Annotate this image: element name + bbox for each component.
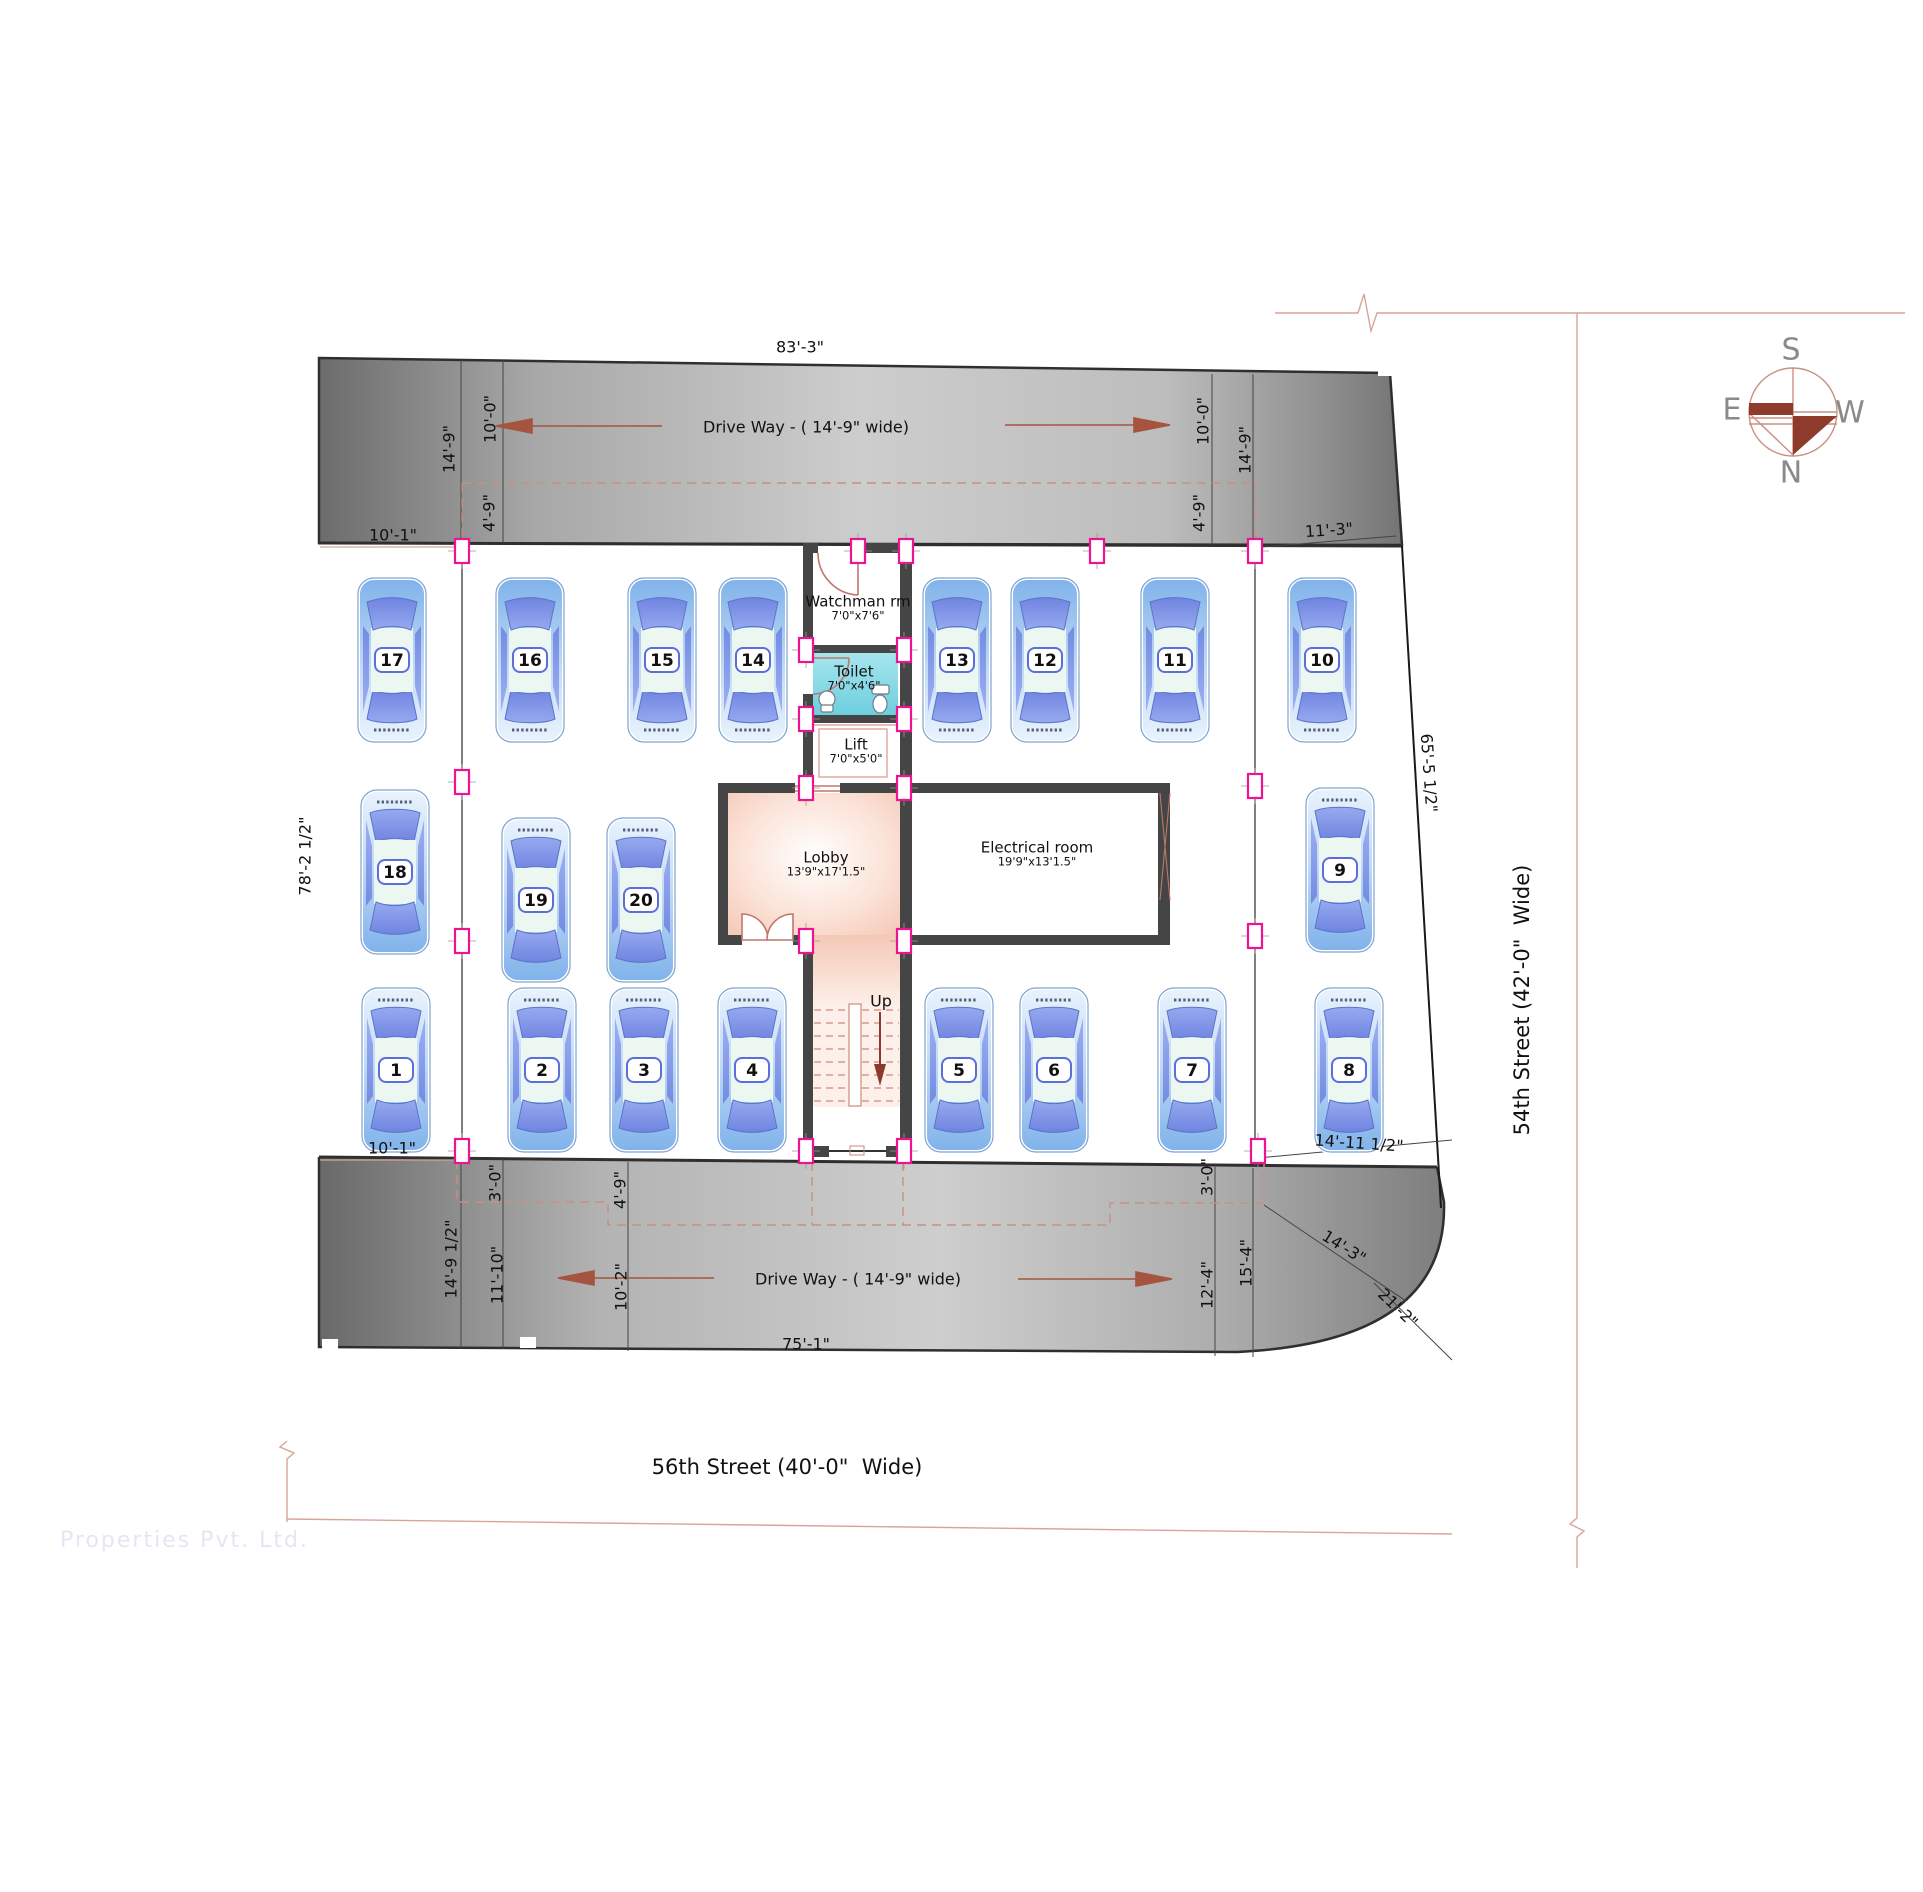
dimension-label: 14'-9": [440, 425, 459, 473]
parking-spot-number: 10: [1310, 651, 1334, 671]
room-name: Lobby: [787, 850, 866, 866]
dimension-label: 4'-9": [480, 494, 499, 532]
room-name: Toilet: [828, 664, 881, 680]
car-spot-5: 5: [925, 988, 993, 1152]
corner-notch: [1378, 363, 1394, 376]
room-size: 7'0"x4'6": [828, 680, 881, 692]
room-label-electrical-room: Electrical room19'9"x13'1.5": [981, 840, 1094, 869]
parking-spot-number: 18: [383, 863, 407, 883]
dimension-label: 4'-9": [611, 1171, 630, 1209]
curb-notch: [322, 1339, 338, 1350]
dimension-label: 10'-0": [481, 395, 500, 443]
column-marker: [448, 764, 476, 800]
parking-spot-number: 14: [741, 651, 765, 671]
car-spot-15: 15: [628, 578, 696, 742]
dimension-label: 14'-9": [1236, 426, 1255, 474]
parking-spot-number: 4: [746, 1061, 758, 1081]
parking-spot-number: 1: [390, 1061, 402, 1081]
dimension-label: 14'-9 1/2": [442, 1220, 461, 1299]
column-marker: [1241, 768, 1269, 804]
watermark: Properties Pvt. Ltd.: [60, 1528, 309, 1553]
car-spot-10: 10: [1288, 578, 1356, 742]
dimension-label: 3'-0": [1198, 1158, 1217, 1196]
parking-spot-number: 8: [1343, 1061, 1355, 1081]
curb-notch: [520, 1337, 536, 1348]
dimension-label: 75'-1": [782, 1335, 830, 1354]
column-marker: [1244, 1133, 1272, 1169]
driveway-label-bottom: Drive Way - ( 14'-9" wide): [755, 1270, 961, 1289]
toilet-door-opening: [803, 658, 813, 694]
parking-spot-number: 19: [524, 891, 548, 911]
room-label-watchman-rm: Watchman rm7'0"x7'6": [805, 594, 910, 623]
column-marker: [448, 923, 476, 959]
parking-spot-number: 11: [1163, 651, 1187, 671]
dimension-label: 83'-3": [776, 338, 824, 357]
car-spot-7: 7: [1158, 988, 1226, 1152]
compass-rose: [1749, 368, 1837, 456]
car-spot-20: 20: [607, 818, 675, 982]
wc-bowl: [873, 695, 887, 713]
parking-spot-number: 9: [1334, 861, 1346, 881]
room-label-lobby: Lobby13'9"x17'1.5": [787, 850, 866, 879]
car-spot-1: 1: [362, 988, 430, 1152]
car-spot-2: 2: [508, 988, 576, 1152]
dimension-label: 11'-3": [1304, 519, 1353, 541]
car-spot-3: 3: [610, 988, 678, 1152]
street-label-right: 54th Street (42'-0" Wide): [1510, 865, 1534, 1136]
car-spot-16: 16: [496, 578, 564, 742]
dimension-label: 10'-0": [1194, 397, 1213, 445]
floor-plan-canvas: 1 2 3: [0, 0, 1923, 1892]
driveway-label-top: Drive Way - ( 14'-9" wide): [703, 418, 909, 437]
dimension-label: 4'-9": [1190, 494, 1209, 532]
room-name: Watchman rm: [805, 594, 910, 610]
parking-spot-number: 17: [380, 651, 404, 671]
room-label-toilet: Toilet7'0"x4'6": [828, 664, 881, 693]
car-spot-4: 4: [718, 988, 786, 1152]
property-line: [1402, 546, 1441, 1208]
dimension-label: 10'-2": [612, 1263, 631, 1311]
parking-spot-number: 15: [650, 651, 674, 671]
compass-east-label: E: [1723, 393, 1742, 428]
car-spot-13: 13: [923, 578, 991, 742]
car-spot-19: 19: [502, 818, 570, 982]
car-spot-8: 8: [1315, 988, 1383, 1152]
street-label-bottom: 56th Street (40'-0" Wide): [652, 1455, 923, 1479]
parking-spot-number: 12: [1033, 651, 1057, 671]
parking-spot-number: 5: [953, 1061, 965, 1081]
parking-spot-number: 6: [1048, 1061, 1060, 1081]
stair-stringer: [849, 1004, 861, 1106]
dimension-label: 10'-1": [369, 526, 417, 545]
column-marker: [1241, 918, 1269, 954]
floor-plan-drawing: 1 2 3: [0, 0, 1923, 1892]
car-spot-6: 6: [1020, 988, 1088, 1152]
car-spot-18: 18: [361, 790, 429, 954]
compass-north-label: N: [1780, 456, 1802, 491]
parking-spot-number: 13: [945, 651, 969, 671]
room-size: 7'0"x7'6": [805, 610, 910, 622]
dimension-label: 15'-4": [1237, 1239, 1256, 1287]
dimension-label: 12'-4": [1198, 1261, 1217, 1309]
parking-spot-number: 20: [629, 891, 653, 911]
room-size: 13'9"x17'1.5": [787, 866, 866, 878]
car-spot-14: 14: [719, 578, 787, 742]
parking-spot-number: 7: [1186, 1061, 1198, 1081]
car-spot-17: 17: [358, 578, 426, 742]
car-spot-11: 11: [1141, 578, 1209, 742]
room-label-lift: Lift7'0"x5'0": [830, 737, 883, 766]
parking-spot-number: 3: [638, 1061, 650, 1081]
compass-west-label: W: [1835, 396, 1865, 431]
car-spot-12: 12: [1011, 578, 1079, 742]
compass-east-bar: [1749, 403, 1793, 415]
dimension-label: 10'-1": [368, 1139, 416, 1158]
car-spot-9: 9: [1306, 788, 1374, 952]
dimension-label: 78'-2 1/2": [296, 817, 315, 896]
dimension-label: 11'-10": [488, 1246, 507, 1304]
compass-south-label: S: [1781, 333, 1800, 368]
dimension-label: 3'-0": [486, 1164, 505, 1202]
parking-spot-number: 2: [536, 1061, 548, 1081]
room-name: Lift: [830, 737, 883, 753]
parking-spot-number: 16: [518, 651, 542, 671]
room-name: Electrical room: [981, 840, 1094, 856]
stairs-up-label: Up: [870, 992, 892, 1011]
room-size: 7'0"x5'0": [830, 753, 883, 765]
room-size: 19'9"x13'1.5": [981, 856, 1094, 868]
